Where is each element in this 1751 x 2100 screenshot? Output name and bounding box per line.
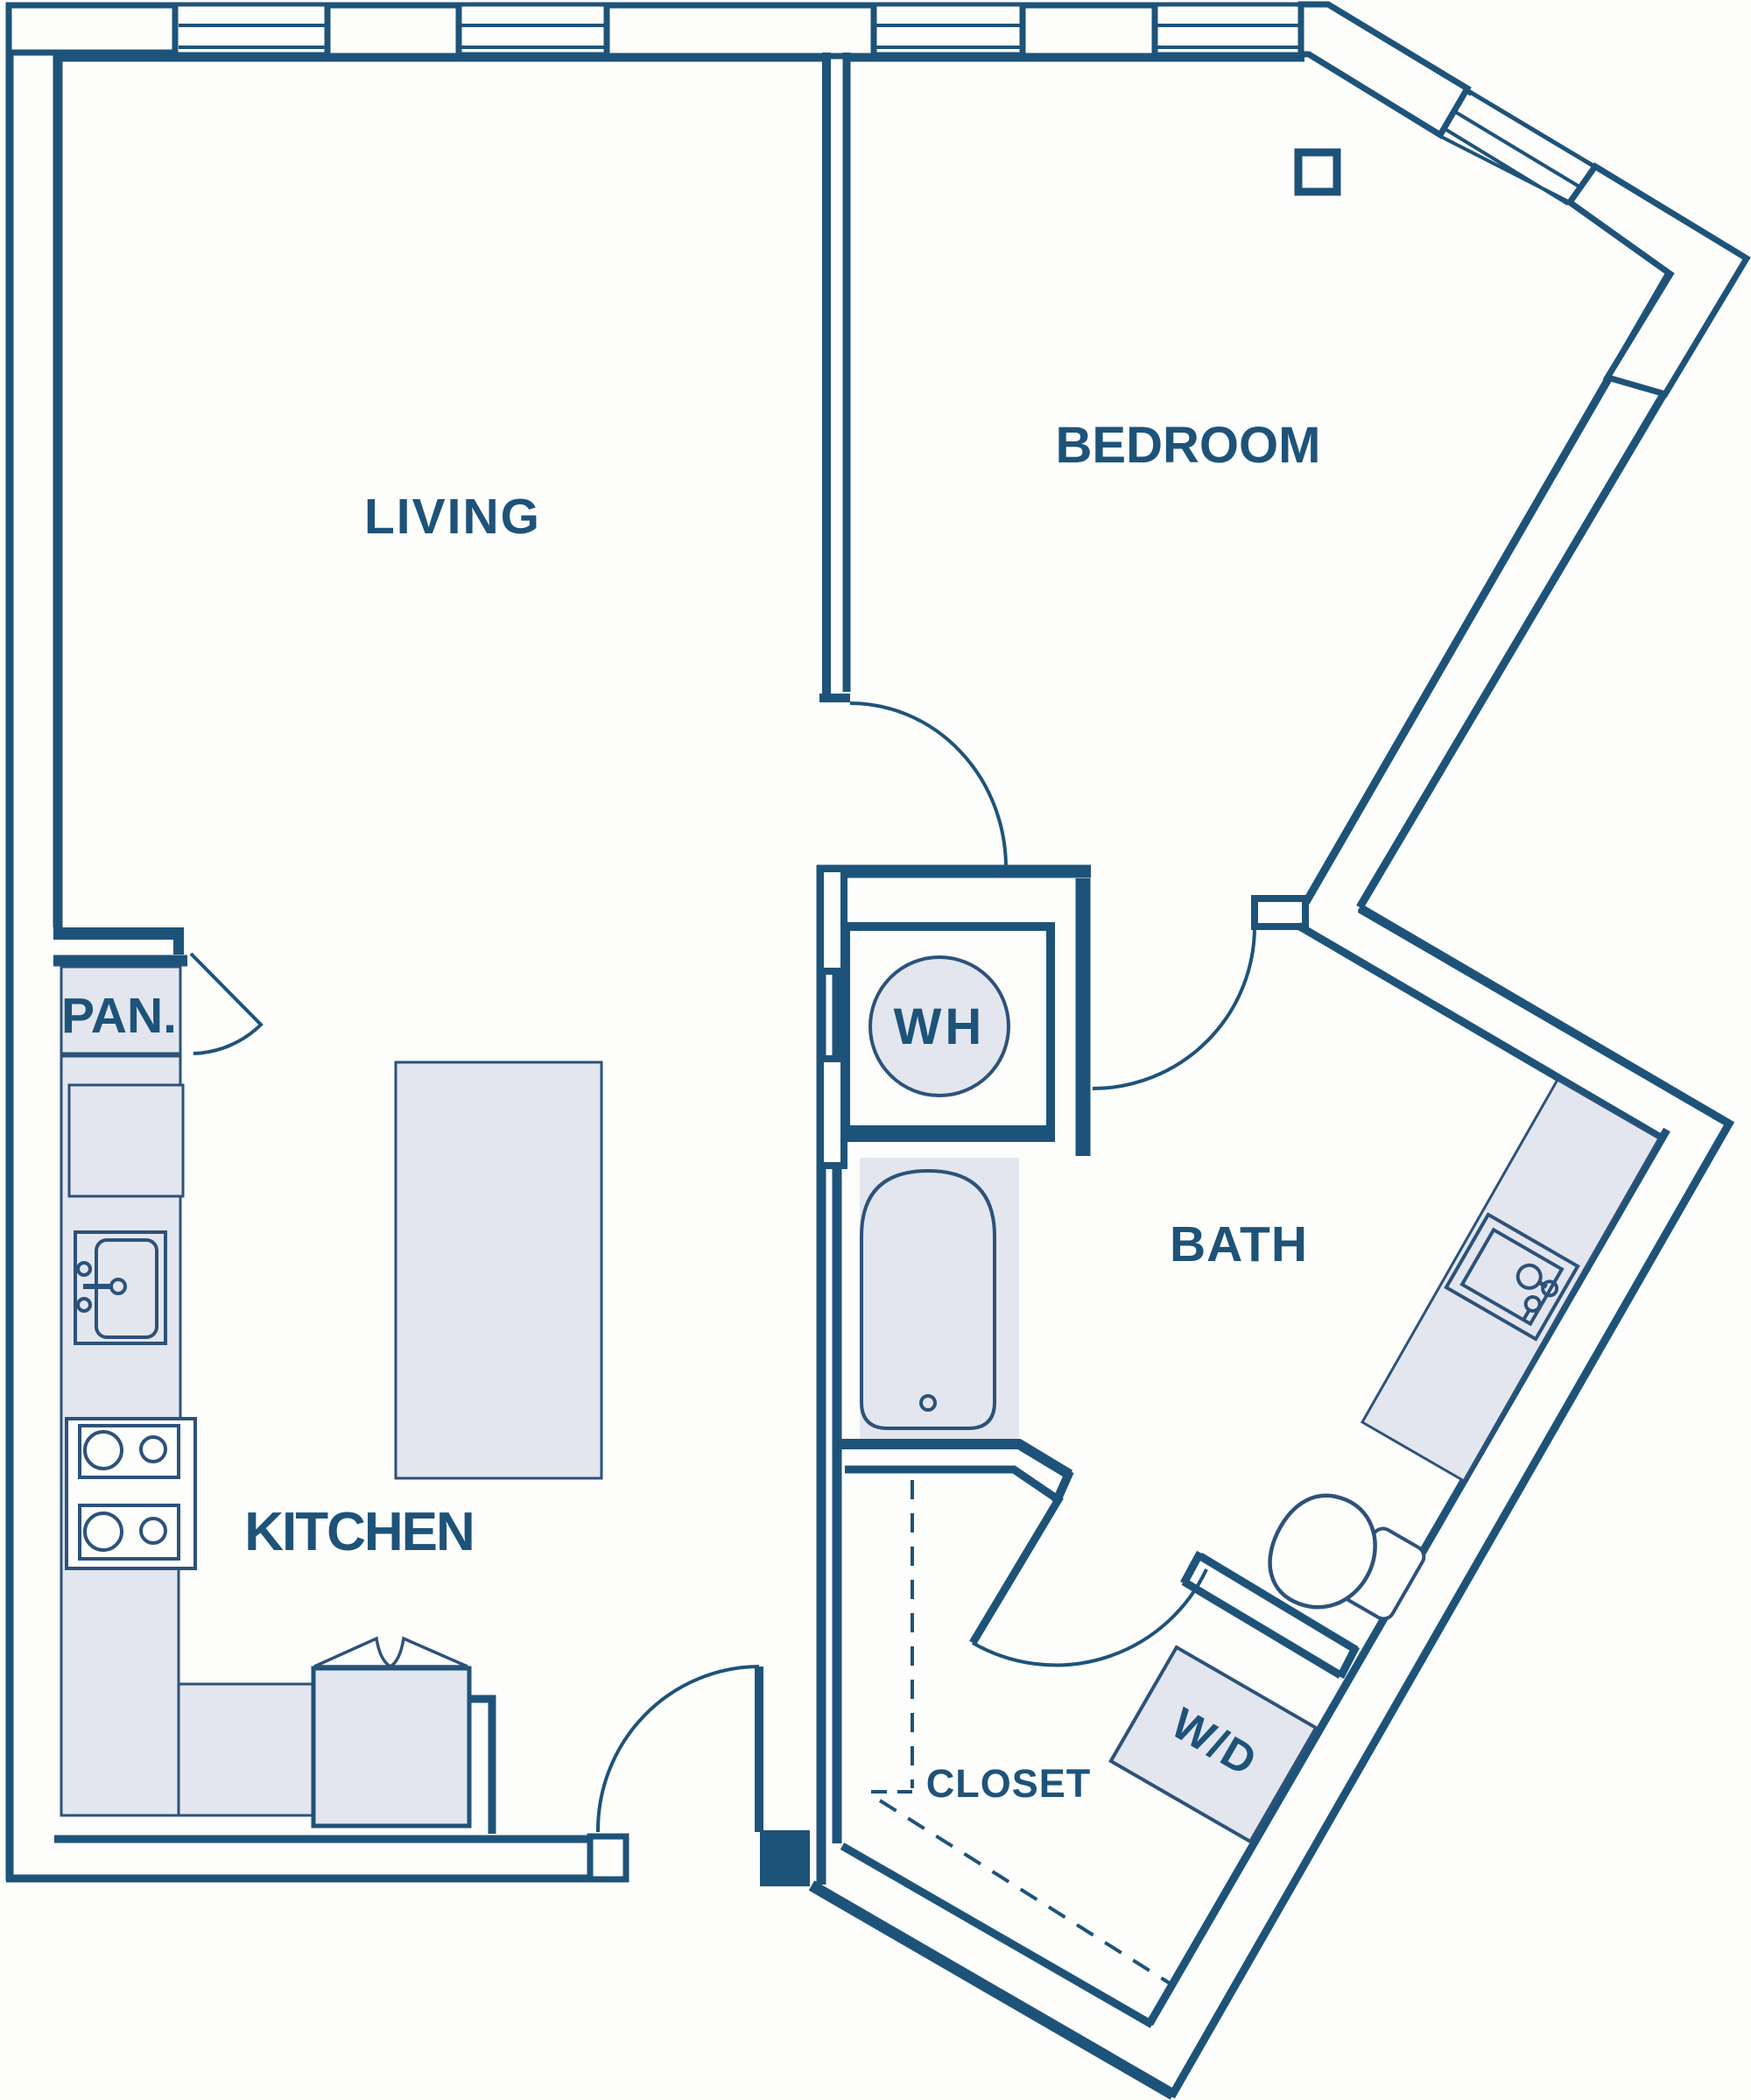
svg-text:BEDROOM: BEDROOM — [1056, 417, 1321, 474]
svg-text:KITCHEN: KITCHEN — [244, 1502, 474, 1562]
svg-text:PAN.: PAN. — [61, 988, 177, 1044]
svg-text:LIVING: LIVING — [364, 489, 541, 545]
svg-text:WH: WH — [894, 998, 986, 1055]
svg-text:CLOSET: CLOSET — [926, 1761, 1092, 1806]
svg-text:BATH: BATH — [1170, 1216, 1308, 1272]
